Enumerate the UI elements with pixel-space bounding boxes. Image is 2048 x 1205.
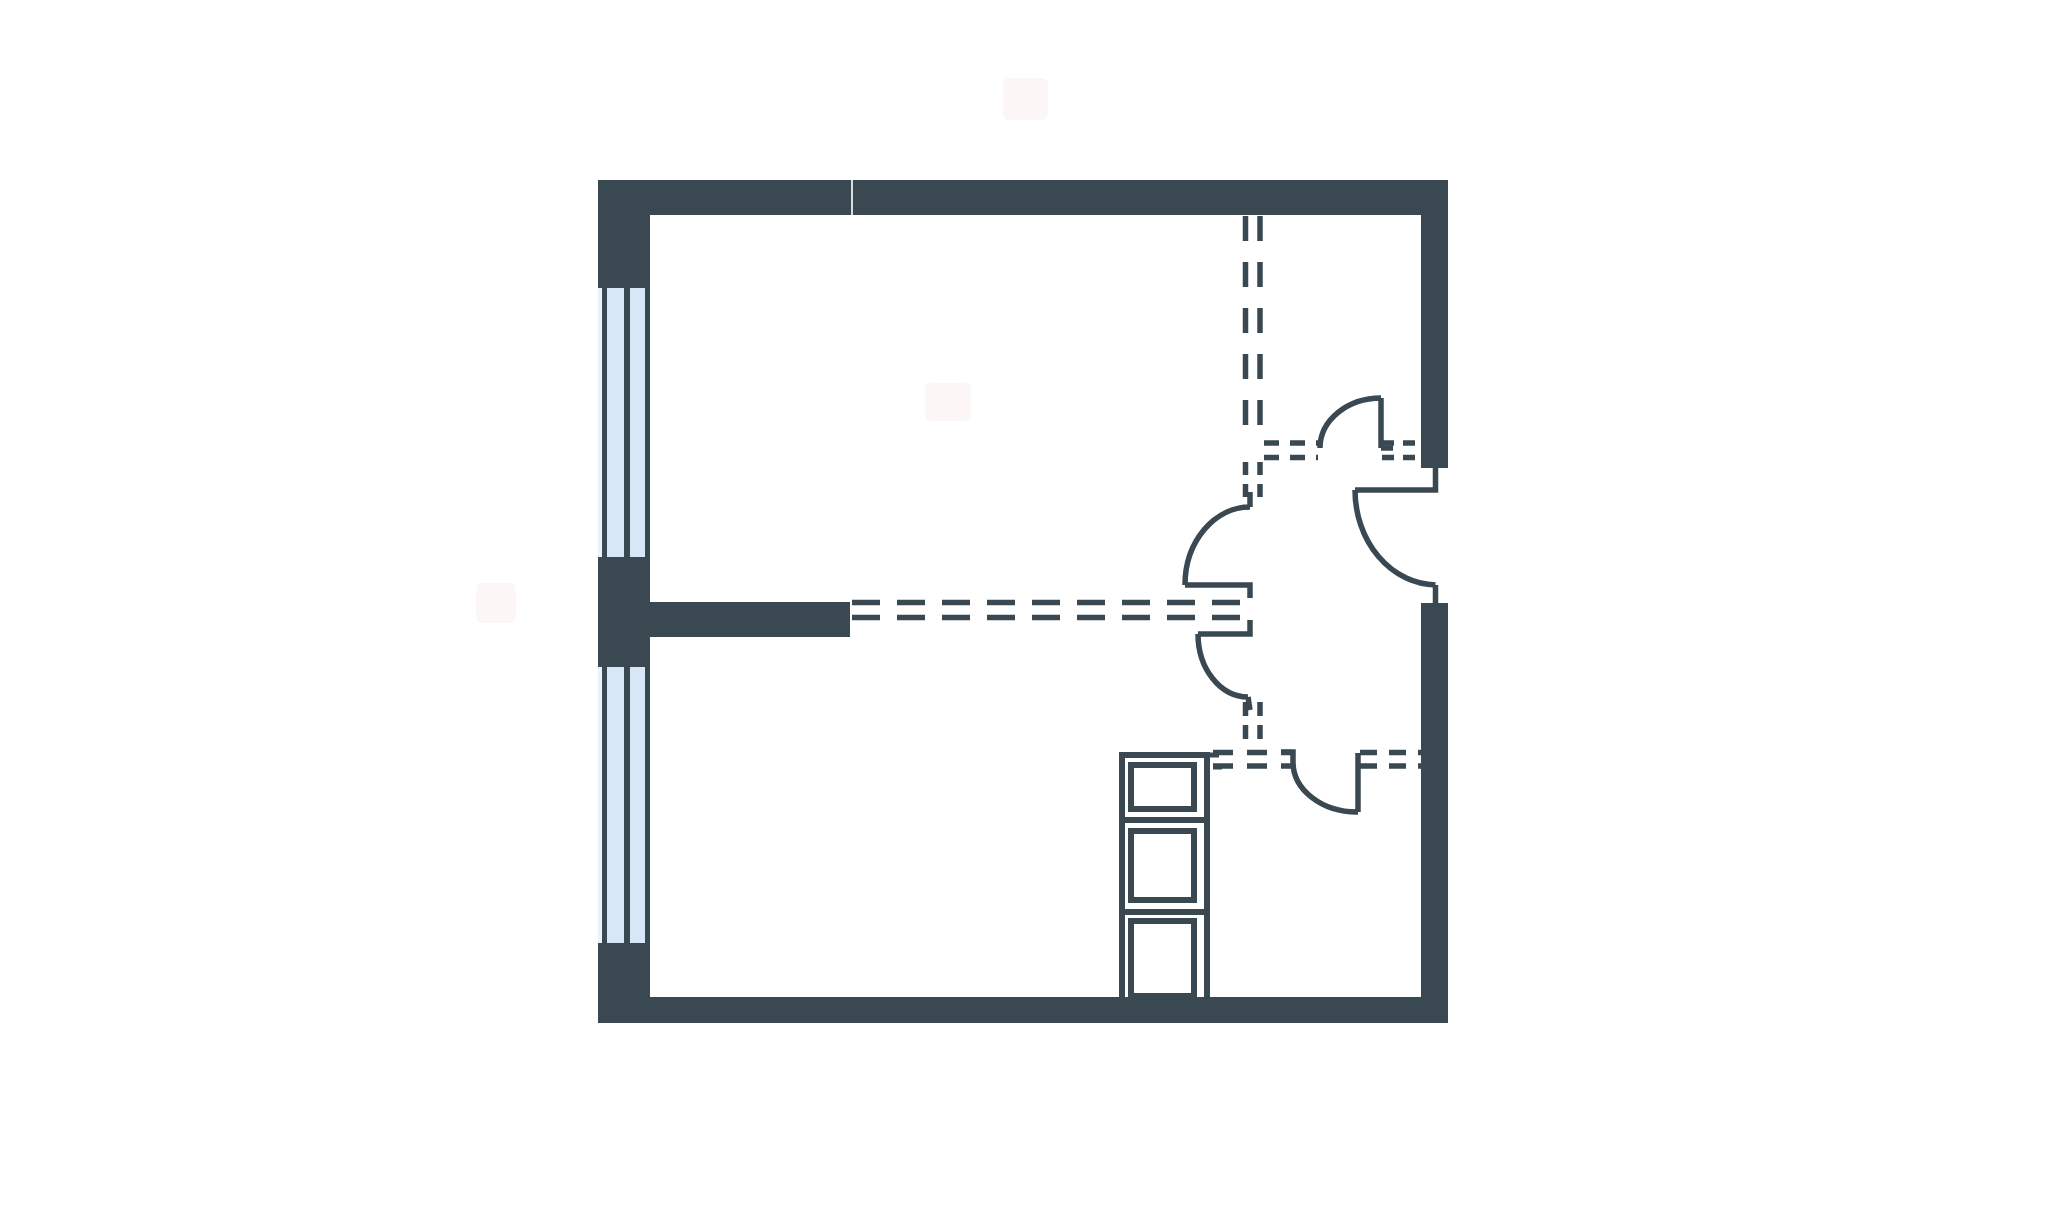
window-upper-left-frame-bar-2 xyxy=(624,288,630,557)
window-lower-left-frame-bar-3 xyxy=(645,667,650,943)
floor-plan-page xyxy=(0,0,2048,1205)
wall-exterior-top xyxy=(598,180,1448,215)
window-lower-left-highlight xyxy=(598,667,602,943)
shaft-divider-lower xyxy=(1119,909,1210,915)
top-wall-panel-seam xyxy=(851,180,853,215)
shaft-frame-top xyxy=(1119,752,1210,758)
wall-corner-top-left xyxy=(598,180,650,288)
shaft-box-top xyxy=(1131,765,1194,809)
shaft-box-bottom xyxy=(1131,921,1194,996)
window-upper-left-highlight xyxy=(598,288,602,557)
wall-exterior-bottom xyxy=(650,997,1448,1023)
window-upper-left-frame-bar-1 xyxy=(602,288,607,557)
wall-exterior-right-upper xyxy=(1421,180,1448,468)
watermark-blob-room xyxy=(925,383,971,421)
window-lower-left-frame-bar-2 xyxy=(624,667,630,943)
wall-left-bottom-pier xyxy=(598,943,650,1023)
wall-interior-stub xyxy=(650,602,850,637)
window-upper-left-frame-bar-3 xyxy=(645,288,650,557)
floor-plan-svg xyxy=(0,0,2048,1205)
wall-exterior-right-lower xyxy=(1421,603,1448,997)
shaft-frame-right xyxy=(1204,752,1210,997)
window-lower-left-frame-bar-1 xyxy=(602,667,607,943)
shaft-box-middle xyxy=(1131,831,1194,900)
shaft-divider-upper xyxy=(1119,817,1210,823)
shaft-frame-left xyxy=(1119,752,1125,997)
watermark-blob-top xyxy=(1003,78,1048,120)
wall-left-middle-pier xyxy=(598,557,650,667)
watermark-blob-left xyxy=(476,583,516,623)
